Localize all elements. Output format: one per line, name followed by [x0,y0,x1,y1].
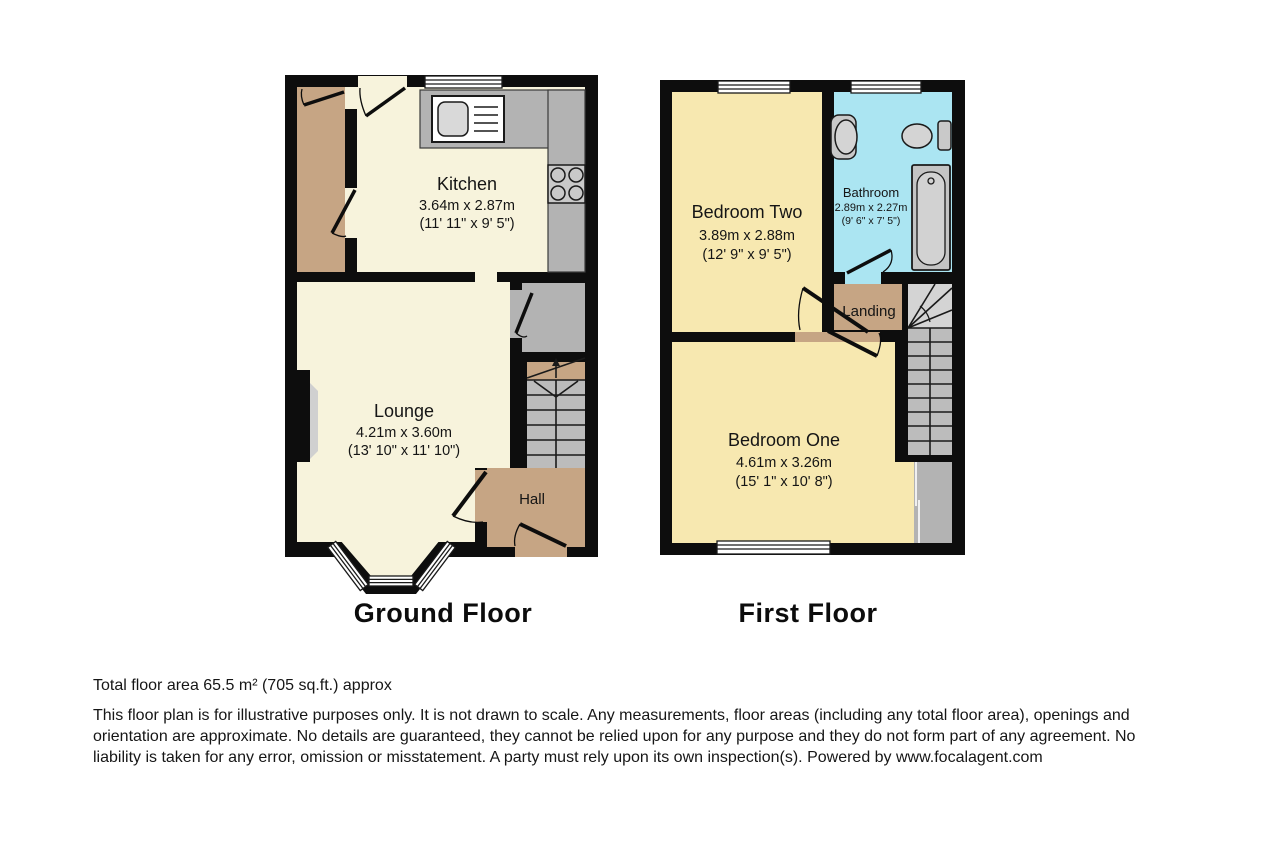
bedroom-one-metric: 4.61m x 3.26m [736,455,832,471]
lounge-metric: 4.21m x 3.60m [356,425,452,441]
ground-floor-title: Ground Floor [270,598,616,629]
hall-label: Hall [519,491,545,508]
first-floor-plan: Bedroom Two 3.89m x 2.88m (12' 9" x 9' 5… [650,60,980,560]
ground-floor-plan: Kitchen 3.64m x 2.87m (11' 11" x 9' 5") … [270,60,610,600]
bathroom-metric: 2.89m x 2.27m [835,202,908,214]
total-floor-area: Total floor area 65.5 m² (705 sq.ft.) ap… [93,677,392,695]
hall-room [475,468,585,557]
chimney-breast [297,370,310,462]
kitchen-window [425,76,502,88]
disclaimer-text: This floor plan is for illustrative purp… [93,705,1165,768]
ground-stairs [527,358,585,468]
bedroom-two-imperial: (12' 9" x 9' 5") [702,247,791,263]
first-stairs [908,284,952,455]
bedroom-two-metric: 3.89m x 2.88m [699,228,795,244]
bedroom-two-window [718,81,790,93]
landing-label: Landing [842,303,895,320]
bathroom-imperial: (9' 6" x 7' 5") [842,215,901,227]
bathroom-label: Bathroom [843,185,899,200]
basin-icon [831,115,857,159]
sink-icon [432,96,504,142]
kitchen-imperial: (11' 11" x 9' 5") [419,216,514,232]
kitchen-metric: 3.64m x 2.87m [419,198,515,214]
bedroom-one-imperial: (15' 1" x 10' 8") [735,474,832,490]
wardrobe [914,462,952,543]
bedroom-one-label: Bedroom One [728,430,840,450]
fireplace-icon [310,383,318,459]
bedroom-one-window [717,541,830,554]
hob-icon [548,165,585,203]
kitchen-label: Kitchen [437,174,497,194]
bathroom-window [851,81,921,93]
bathtub-icon [912,165,950,270]
bay-window-center [369,576,413,586]
floor-plan-page: Kitchen 3.64m x 2.87m (11' 11" x 9' 5") … [0,0,1273,865]
bedroom-two-label: Bedroom Two [692,202,803,222]
lounge-imperial: (13' 10" x 11' 10") [348,443,460,459]
lounge-label: Lounge [374,401,434,421]
first-floor-title: First Floor [650,598,966,629]
